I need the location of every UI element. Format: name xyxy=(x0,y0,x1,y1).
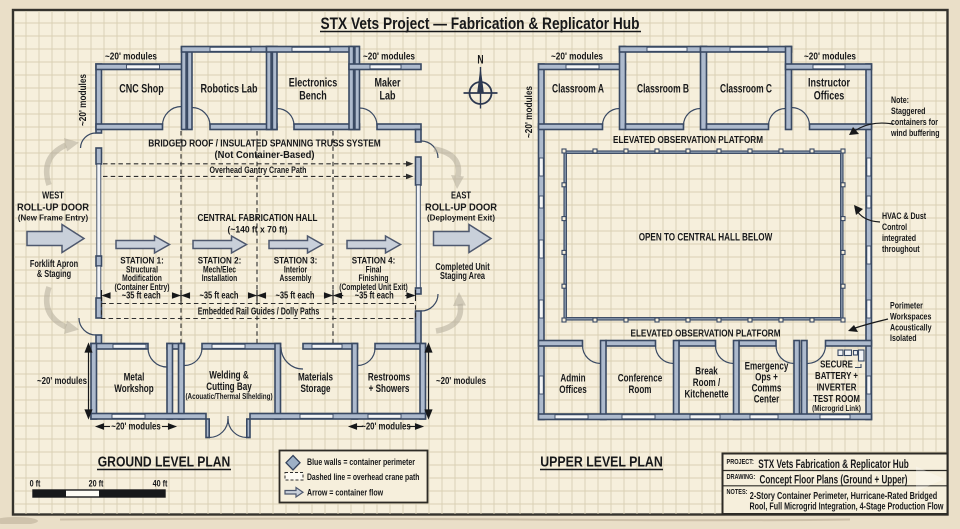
svg-text:N: N xyxy=(477,55,483,67)
svg-text:Materials: Materials xyxy=(298,371,333,383)
svg-text:Welding &: Welding & xyxy=(209,369,249,381)
svg-text:Note:: Note: xyxy=(891,94,909,105)
svg-text:Classroom B: Classroom B xyxy=(637,82,689,96)
svg-text:CENTRAL FABRICATION HALL: CENTRAL FABRICATION HALL xyxy=(198,213,319,224)
svg-text:Classroom A: Classroom A xyxy=(552,82,604,96)
svg-text:Room /: Room / xyxy=(693,377,720,389)
svg-text:Maker: Maker xyxy=(375,76,401,90)
svg-text:UPPER LEVEL PLAN: UPPER LEVEL PLAN xyxy=(540,453,663,470)
svg-text:Dashed line = overhead crane p: Dashed line = overhead crane path xyxy=(307,472,420,482)
svg-text:Porimeter: Porimeter xyxy=(890,299,923,310)
svg-text:Break: Break xyxy=(695,365,718,377)
svg-text:HVAC & Dust: HVAC & Dust xyxy=(882,210,926,221)
svg-text:SECURE: SECURE xyxy=(820,359,853,371)
svg-text:DRAWING:: DRAWING: xyxy=(727,472,756,481)
svg-text:INVERTER: INVERTER xyxy=(817,382,857,394)
svg-text:STX Vets Fabrication & Replica: STX Vets Fabrication & Replicator Hub xyxy=(758,457,909,471)
svg-text:Bench: Bench xyxy=(299,89,327,103)
svg-text:~20' modules: ~20' modules xyxy=(436,376,486,387)
svg-text:integrated: integrated xyxy=(882,232,916,243)
svg-text:& Staging: & Staging xyxy=(37,269,71,280)
svg-text:wind buffering: wind buffering xyxy=(890,127,939,138)
svg-text:BRIDGED ROOF / INSULATED SPANN: BRIDGED ROOF / INSULATED SPANNING TRUSS … xyxy=(148,138,381,150)
svg-text:~20' modules: ~20' modules xyxy=(363,52,415,63)
svg-text:Storage: Storage xyxy=(300,383,330,395)
svg-text:NOTES:: NOTES: xyxy=(727,487,748,496)
svg-text:Blue walls = container perimet: Blue walls = container perimeter xyxy=(307,457,415,467)
svg-text:~20' modules: ~20' modules xyxy=(524,86,535,138)
svg-text:Embedded Rail Guides / Dolly P: Embedded Rail Guides / Dolly Paths xyxy=(198,306,320,317)
svg-text:Acoustically: Acoustically xyxy=(890,321,932,332)
svg-text:~20' modules: ~20' modules xyxy=(78,74,89,126)
svg-text:Installation: Installation xyxy=(202,273,238,283)
svg-text:(Acouatic/Thermal SIhelding): (Acouatic/Thermal SIhelding) xyxy=(185,391,272,401)
svg-text:(~140 ft x 70 ft): (~140 ft x 70 ft) xyxy=(228,224,288,235)
svg-text:20 ft: 20 ft xyxy=(89,478,104,489)
svg-text:~35 ft each: ~35 ft each xyxy=(276,291,315,302)
svg-text:throughout: throughout xyxy=(882,243,920,254)
svg-text:~35 ft each: ~35 ft each xyxy=(355,291,394,302)
svg-text:(Not Container-Based): (Not Container-Based) xyxy=(215,149,315,161)
svg-text:Workshop: Workshop xyxy=(114,383,154,395)
svg-text:(New Frame Entry): (New Frame Entry) xyxy=(18,213,88,223)
svg-text:~35 ft each: ~35 ft each xyxy=(122,291,161,302)
svg-text:Overhead Gantry Crane Path: Overhead Gantry Crane Path xyxy=(210,164,307,175)
svg-text:2-Story Container Perimeter, H: 2-Story Container Perimeter, Hurricane-R… xyxy=(750,491,938,502)
svg-text:Concept Floor Plans (Ground +: Concept Floor Plans (Ground + Upper) xyxy=(760,473,908,487)
svg-text:Staggered: Staggered xyxy=(891,105,926,116)
svg-text:Offices: Offices xyxy=(559,384,586,396)
svg-text:~20' modules: ~20' modules xyxy=(551,52,603,63)
svg-text:PROJECT:: PROJECT: xyxy=(727,457,754,466)
svg-text:Lab: Lab xyxy=(380,89,396,103)
svg-text:OPEN TO CENTRAL HALL BELOW: OPEN TO CENTRAL HALL BELOW xyxy=(639,232,773,244)
svg-text:Offices: Offices xyxy=(814,89,845,103)
svg-text:Staging Area: Staging Area xyxy=(440,271,485,282)
svg-text:EAST: EAST xyxy=(451,190,472,201)
svg-text:ELEVATED OBSERVATION PLATFORM: ELEVATED OBSERVATION PLATFORM xyxy=(613,135,763,146)
svg-text:0 ft: 0 ft xyxy=(30,478,41,489)
svg-text:Room: Room xyxy=(629,384,652,396)
svg-text:+ Showers: + Showers xyxy=(369,383,410,395)
svg-text:Rool, Full Microgrid Integrati: Rool, Full Microgrid Integration, 4-Stag… xyxy=(750,501,944,512)
svg-text:STX Vets Project — Fabrication: STX Vets Project — Fabrication & Replica… xyxy=(321,14,640,33)
svg-text:(Deployment Exit): (Deployment Exit) xyxy=(427,213,495,223)
svg-text:Restrooms: Restrooms xyxy=(368,371,410,383)
svg-text:~20' modules: ~20' modules xyxy=(804,52,856,63)
svg-text:40 ft: 40 ft xyxy=(153,478,168,489)
svg-text:~20' modules: ~20' modules xyxy=(111,422,161,433)
svg-text:BATTERY +: BATTERY + xyxy=(815,370,858,382)
svg-text:Metal: Metal xyxy=(124,371,145,383)
svg-text:GROUND LEVEL PLAN: GROUND LEVEL PLAN xyxy=(98,453,231,470)
svg-text:Workspaces: Workspaces xyxy=(890,310,931,321)
svg-text:~20' modules: ~20' modules xyxy=(37,376,87,387)
svg-text:Electronics: Electronics xyxy=(289,76,338,90)
svg-text:WEST: WEST xyxy=(42,190,64,201)
svg-text:Assembly: Assembly xyxy=(280,273,312,283)
svg-text:containers for: containers for xyxy=(891,116,938,127)
svg-text:Arrow = container flow: Arrow = container flow xyxy=(307,488,384,498)
svg-text:~20' modules: ~20' modules xyxy=(361,422,411,433)
svg-text:Control: Control xyxy=(882,221,907,232)
svg-text:(Microgrid Link): (Microgrid Link) xyxy=(812,403,861,413)
svg-text:Robotics Lab: Robotics Lab xyxy=(201,82,258,96)
svg-text:Classroom C: Classroom C xyxy=(720,82,772,96)
svg-text:ELEVATED OBSERVATION PLATFORM: ELEVATED OBSERVATION PLATFORM xyxy=(631,329,781,340)
svg-text:CNC Shop: CNC Shop xyxy=(119,82,163,96)
svg-text:Admin: Admin xyxy=(560,372,585,384)
svg-text:~35 ft each: ~35 ft each xyxy=(200,291,239,302)
svg-text:Kitchenette: Kitchenette xyxy=(684,388,728,400)
svg-text:Isolated: Isolated xyxy=(890,332,917,343)
svg-text:Instructor: Instructor xyxy=(808,76,850,90)
svg-text:Conference: Conference xyxy=(618,372,663,384)
svg-text:~20' modules: ~20' modules xyxy=(105,52,157,63)
svg-text:Center: Center xyxy=(754,393,780,405)
